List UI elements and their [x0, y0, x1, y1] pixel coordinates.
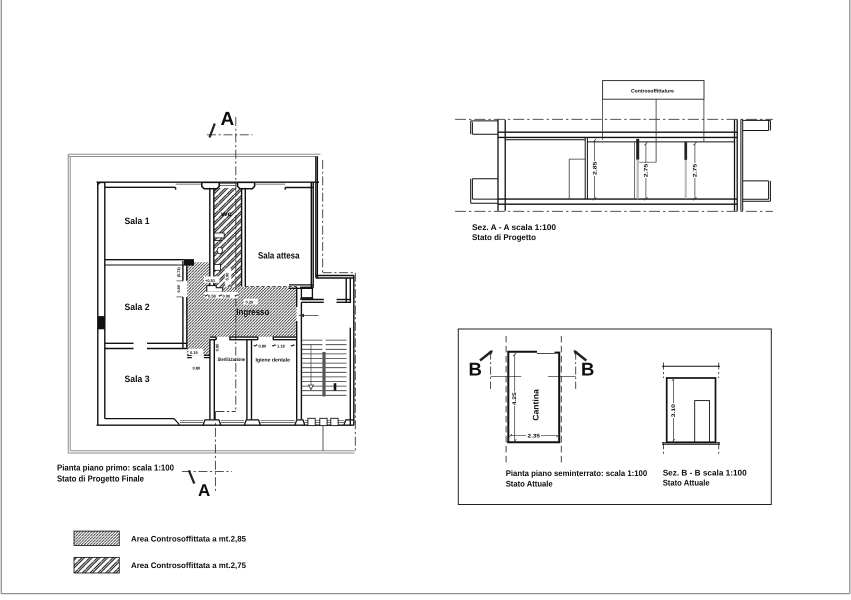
svg-text:Ingresso: Ingresso — [236, 307, 269, 317]
svg-text:Sterilizzazione: Sterilizzazione — [218, 357, 246, 363]
svg-text:Controsoffittature: Controsoffittature — [631, 89, 674, 95]
svg-text:Cantina: Cantina — [532, 389, 541, 421]
svg-text:3.10: 3.10 — [671, 404, 677, 417]
svg-text:Stato di Progetto Finale: Stato di Progetto Finale — [57, 474, 144, 484]
svg-text:Area Controsoffittata a mt.2,8: Area Controsoffittata a mt.2,85 — [131, 535, 247, 544]
svg-text:Area Controsoffittata a mt.2,7: Area Controsoffittata a mt.2,75 — [131, 561, 247, 570]
svg-text:0.58: 0.58 — [208, 293, 217, 298]
svg-text:2.75: 2.75 — [644, 164, 650, 178]
svg-text:Sez. B - B scala 1:100: Sez. B - B scala 1:100 — [663, 468, 747, 477]
svg-text:B: B — [469, 359, 482, 380]
svg-text:A: A — [198, 481, 210, 500]
svg-text:2.35: 2.35 — [528, 433, 541, 439]
svg-text:4.25: 4.25 — [512, 392, 518, 405]
svg-text:Igiene dentale: Igiene dentale — [256, 358, 291, 364]
svg-text:Sala 2: Sala 2 — [125, 302, 150, 312]
svg-text:B: B — [581, 359, 594, 380]
svg-text:Sala attesa: Sala attesa — [258, 251, 300, 261]
svg-text:0.80: 0.80 — [193, 366, 202, 371]
svg-text:2.85: 2.85 — [592, 161, 598, 175]
svg-text:Pianta piano primo: scala 1:10: Pianta piano primo: scala 1:100 — [57, 463, 174, 473]
svg-text:1.18: 1.18 — [277, 343, 286, 348]
svg-text:0.90: 0.90 — [225, 272, 230, 281]
svg-text:0.80: 0.80 — [259, 343, 268, 348]
svg-text:0.15: 0.15 — [190, 350, 199, 355]
svg-text:Stato di Progetto: Stato di Progetto — [472, 233, 536, 242]
svg-text:Stato Attuale: Stato Attuale — [506, 479, 553, 488]
svg-text:Sala 3: Sala 3 — [125, 374, 150, 384]
svg-text:0.80: 0.80 — [214, 343, 219, 352]
svg-text:0.90: 0.90 — [223, 293, 232, 298]
svg-text:Pianta piano seminterrato: sca: Pianta piano seminterrato: scala 1:100 — [506, 469, 648, 478]
svg-text:wc: wc — [220, 211, 233, 218]
svg-text:+0.51: +0.51 — [205, 278, 216, 283]
svg-text:Sala 1: Sala 1 — [125, 216, 150, 226]
svg-text:2.75: 2.75 — [693, 164, 699, 178]
svg-text:Stato Attuale: Stato Attuale — [663, 479, 710, 488]
svg-text:(0.73): (0.73) — [177, 267, 181, 278]
svg-text:A: A — [221, 109, 235, 130]
svg-text:0.26: 0.26 — [246, 300, 255, 305]
svg-text:0.80: 0.80 — [177, 285, 181, 292]
svg-text:Sez. A - A scala 1:100: Sez. A - A scala 1:100 — [472, 223, 556, 232]
